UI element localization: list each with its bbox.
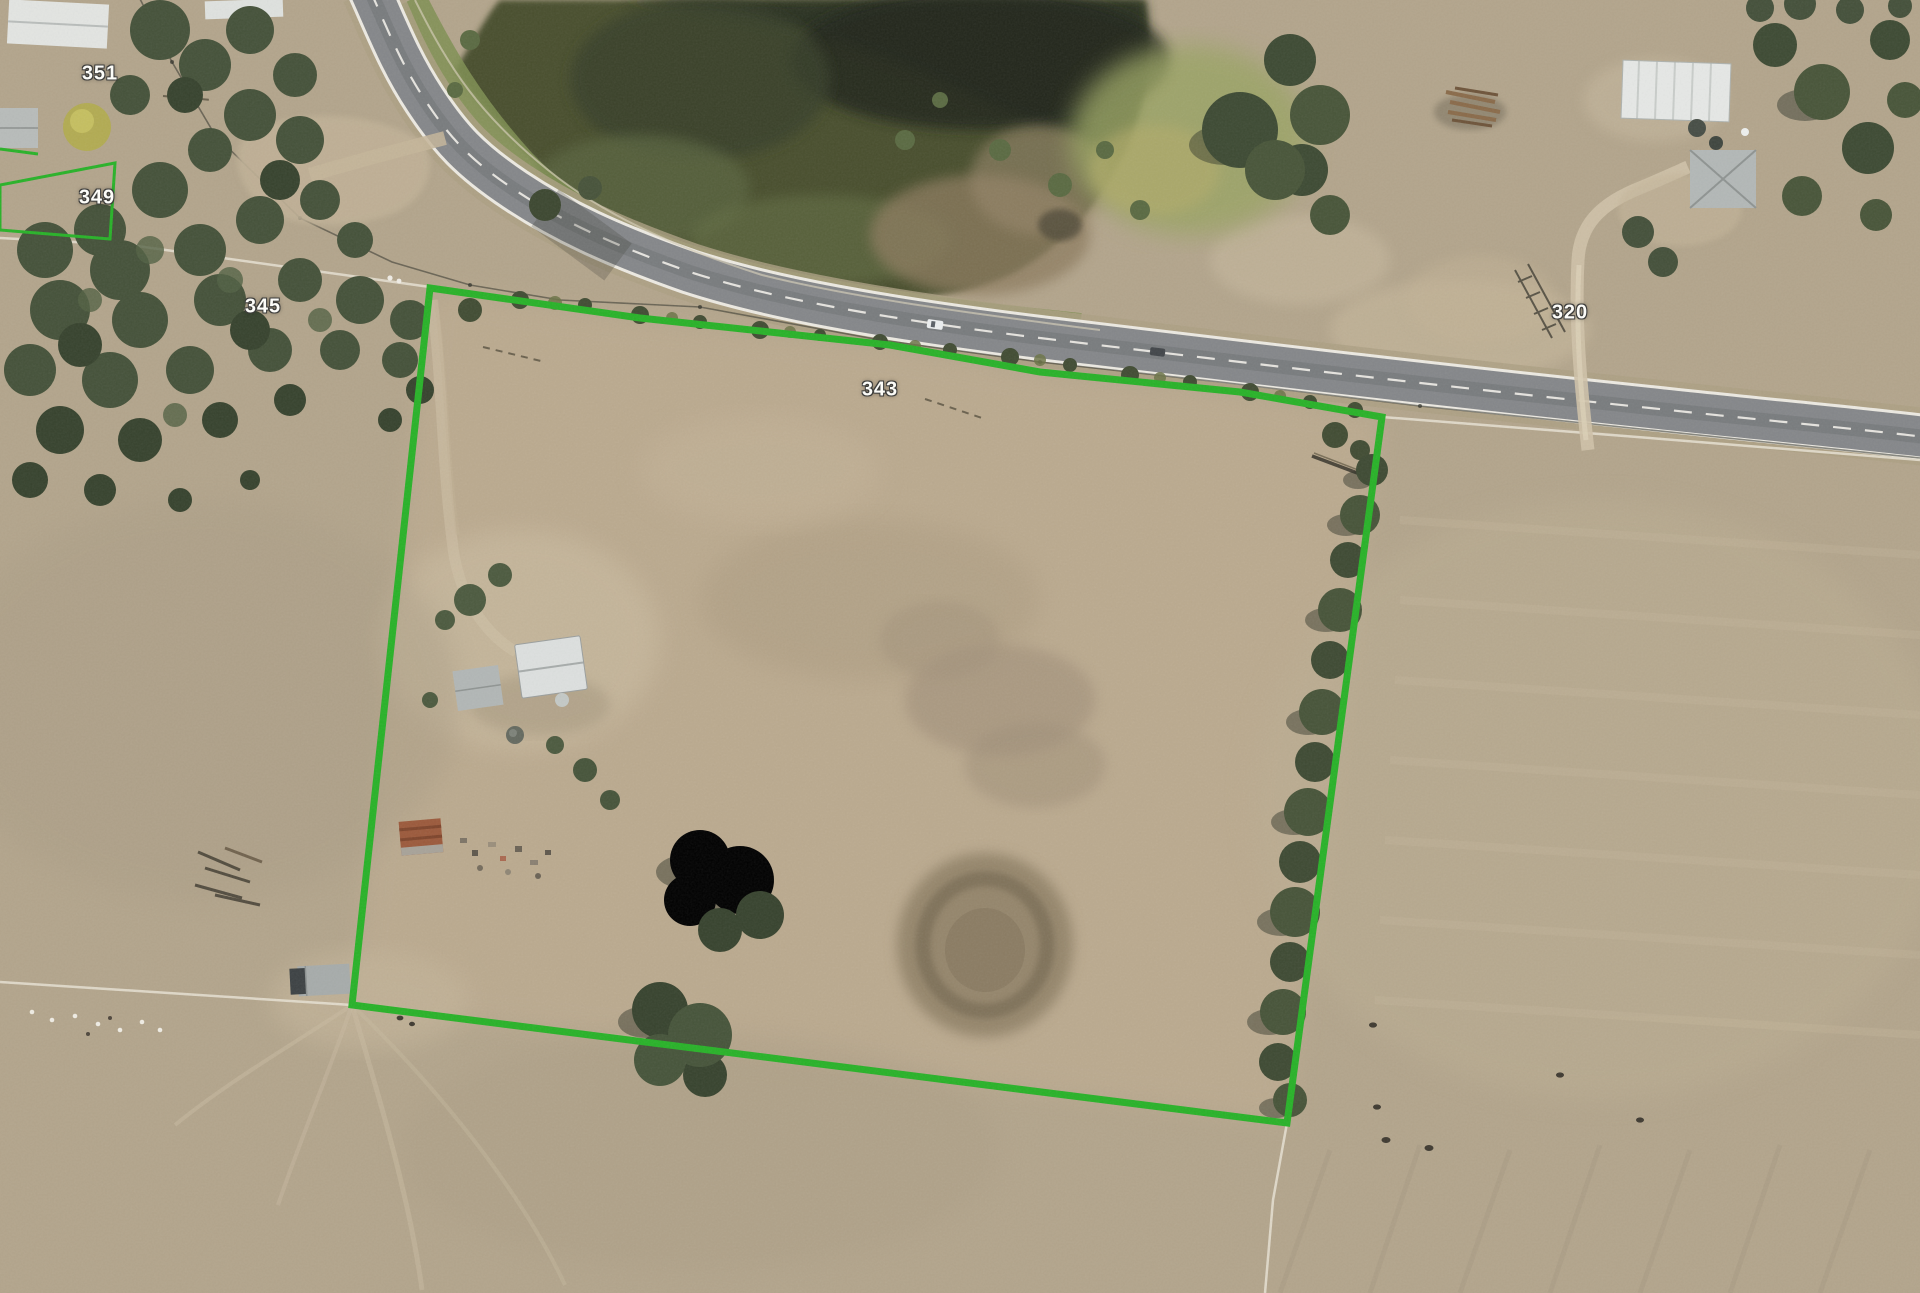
parcel-label-349: 349 [79,187,115,210]
parcel-label-320: 320 [1552,302,1588,325]
parcel-label-343: 343 [862,379,898,402]
imagery-noise-texture [0,0,1920,1293]
aerial-imagery [0,0,1920,1293]
parcel-label-351: 351 [82,63,118,86]
parcel-label-345: 345 [245,296,281,319]
map-canvas[interactable]: 351 349 345 343 320 [0,0,1920,1293]
